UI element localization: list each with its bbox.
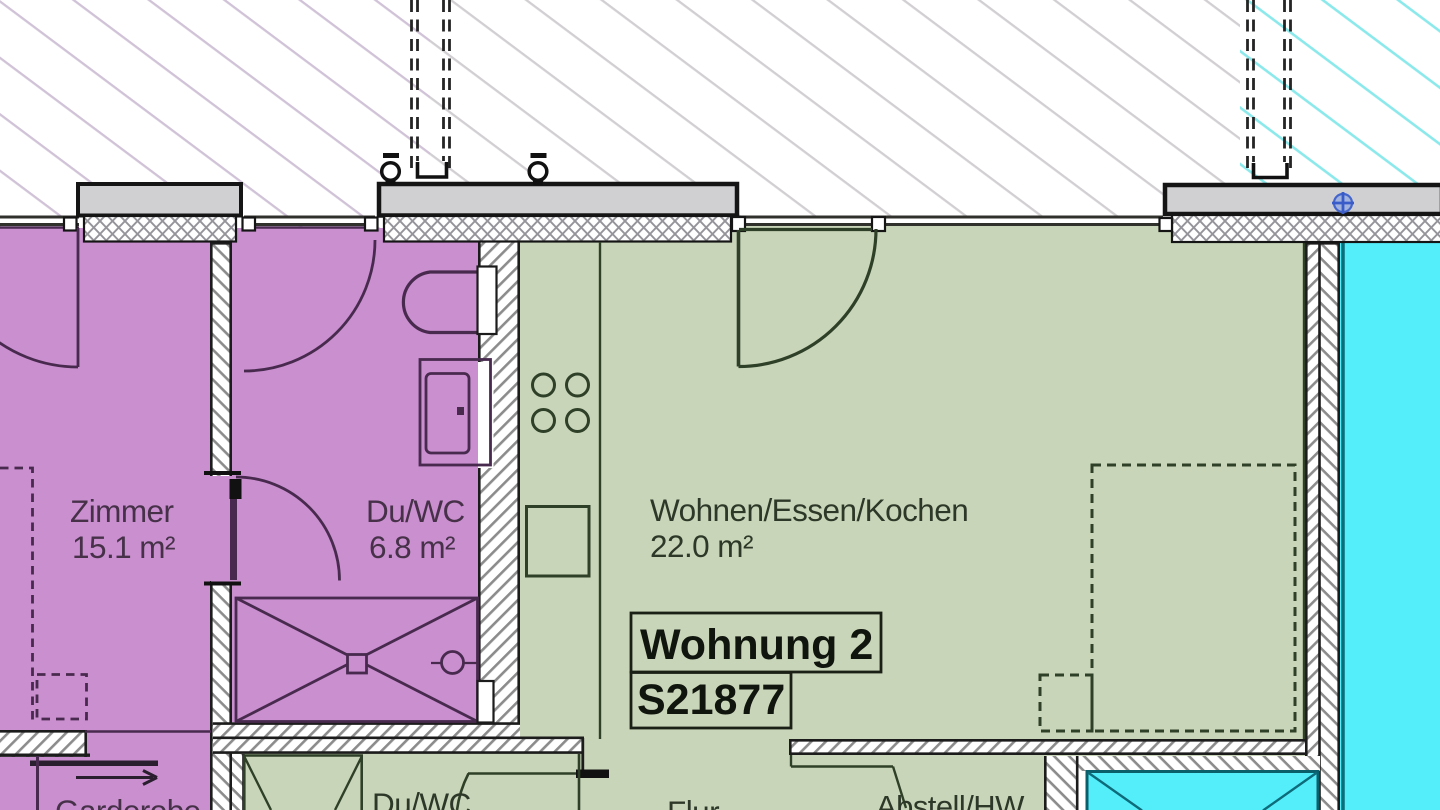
svg-text:Wohnen/Essen/Kochen: Wohnen/Essen/Kochen bbox=[650, 492, 968, 528]
svg-text:6.8 m²: 6.8 m² bbox=[369, 529, 455, 565]
svg-text:S21877: S21877 bbox=[637, 676, 785, 724]
svg-text:Abstell/HW: Abstell/HW bbox=[876, 789, 1025, 810]
svg-text:Du/WC: Du/WC bbox=[366, 493, 465, 529]
svg-text:Garderobe: Garderobe bbox=[55, 793, 201, 810]
svg-text:Zimmer: Zimmer bbox=[70, 493, 173, 529]
svg-text:Du/WC: Du/WC bbox=[372, 786, 471, 810]
svg-text:Flur: Flur bbox=[667, 794, 719, 810]
svg-text:22.0 m²: 22.0 m² bbox=[650, 528, 753, 564]
svg-text:15.1 m²: 15.1 m² bbox=[72, 529, 175, 565]
svg-text:Wohnung 2: Wohnung 2 bbox=[640, 621, 873, 669]
